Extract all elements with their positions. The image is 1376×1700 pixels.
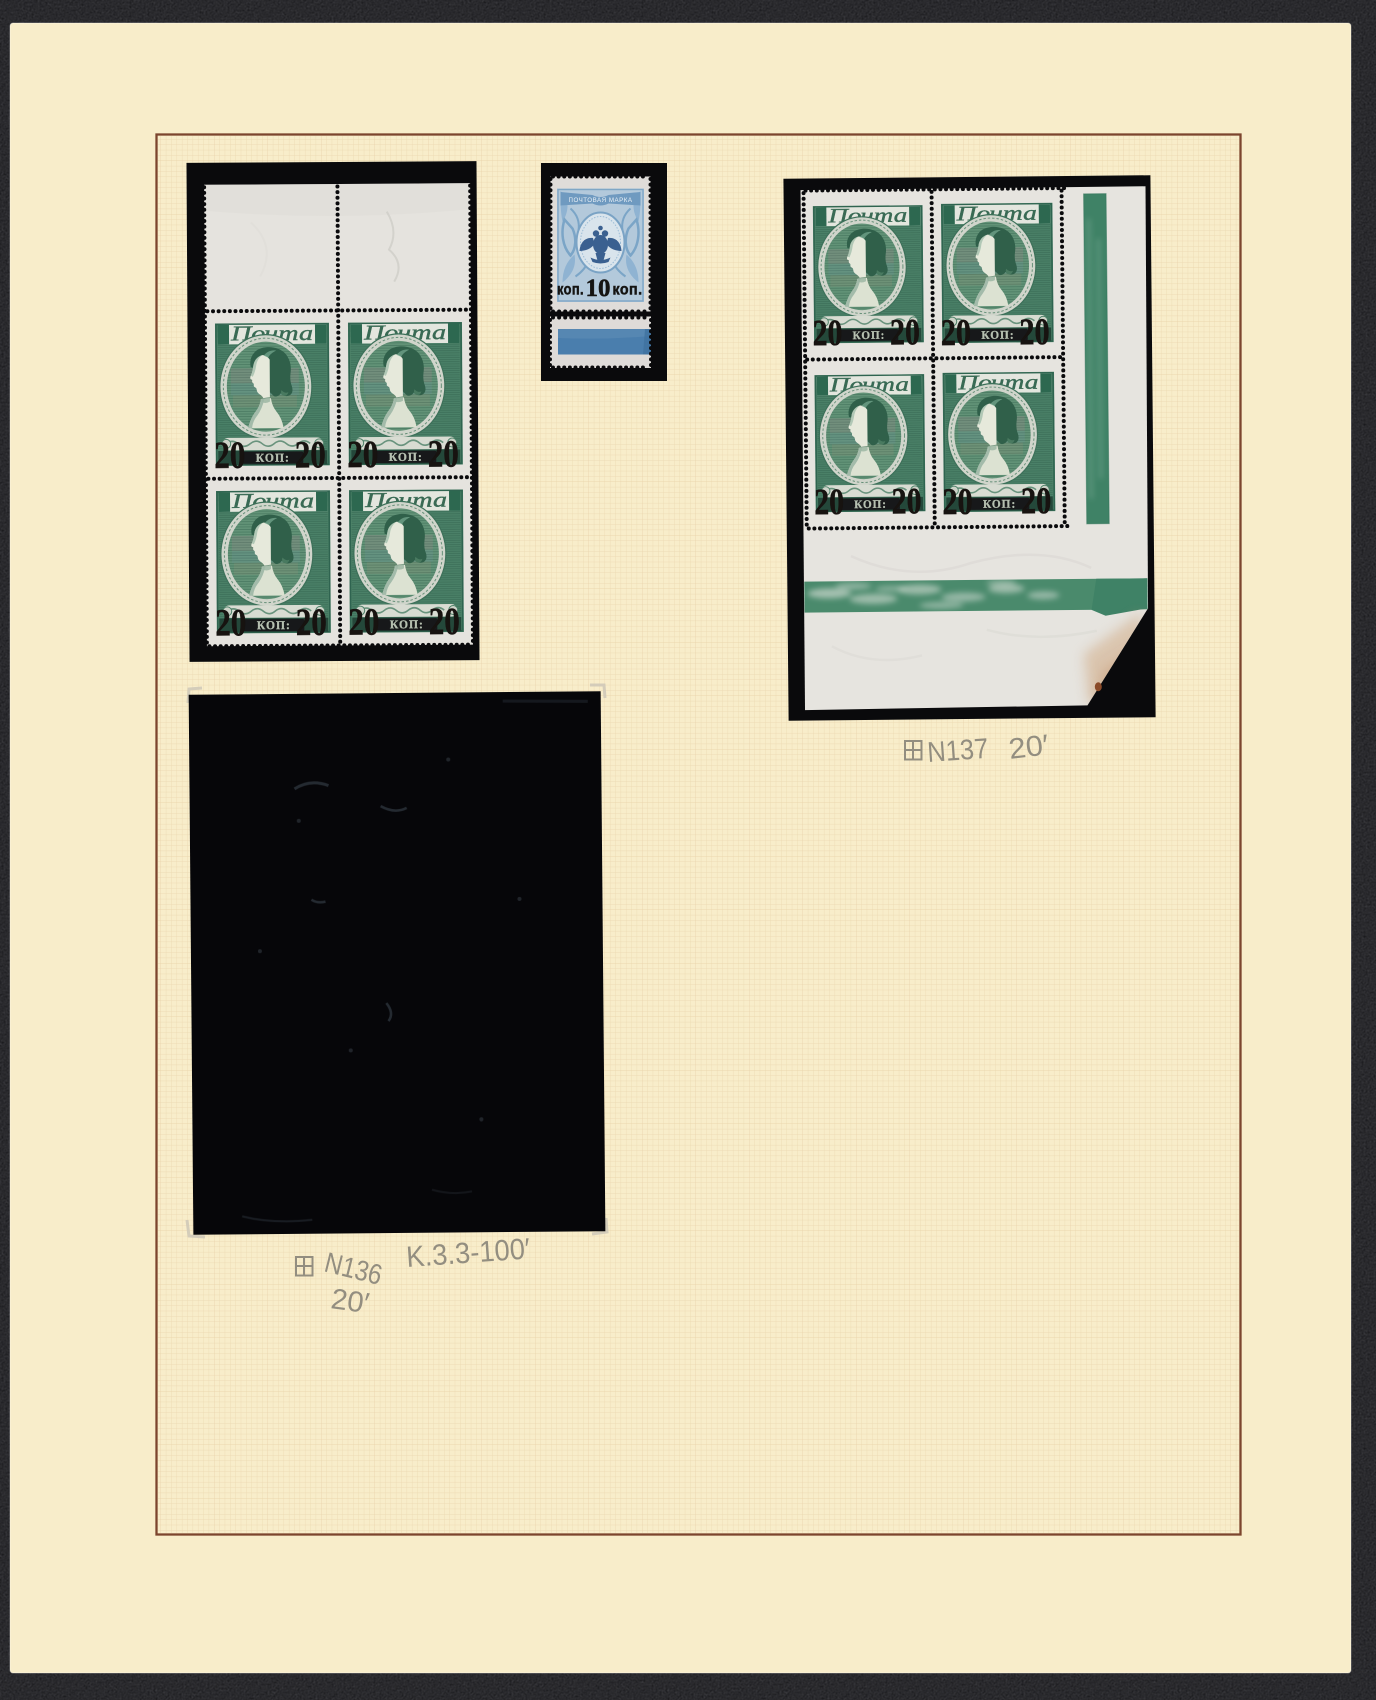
svg-text:20′: 20′ [329, 1283, 371, 1320]
svg-text:20′: 20′ [1007, 729, 1051, 766]
svg-text:N137: N137 [926, 733, 989, 769]
